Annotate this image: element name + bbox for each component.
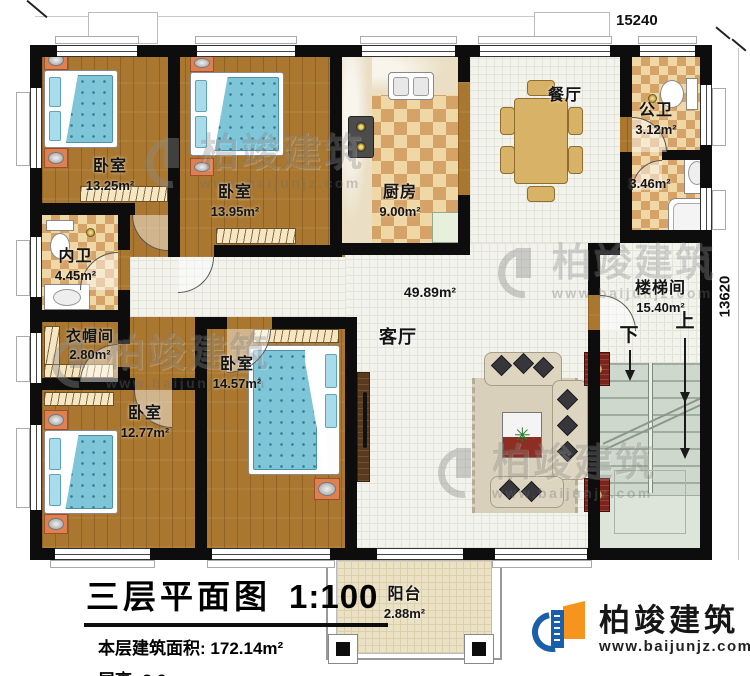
wall-bedroom3-living (345, 317, 357, 548)
window-bottom-living (495, 548, 587, 560)
stairs-down-label: 下 (616, 324, 642, 349)
wall-kitchen-bottom (330, 243, 470, 255)
nightstand (314, 478, 340, 500)
logo-building-blue-icon (551, 610, 564, 648)
window-top-bath (640, 45, 695, 57)
stair-down-arrowhead (625, 370, 635, 381)
plan-scale: 1:100 (289, 578, 378, 615)
room-label-bedroom1: 卧室 13.25m² (55, 157, 165, 195)
window-top-bedroom2 (197, 45, 295, 57)
plan-title-text: 三层平面图 (86, 578, 271, 615)
wall-bedroom1-bedroom2 (168, 57, 180, 257)
brand-logo-icon (536, 600, 590, 660)
nightstand (44, 514, 68, 534)
window-left-bedroom4 (30, 425, 42, 510)
dining-chair (500, 146, 515, 174)
brand-logo: 柏竣建筑 www.baijunjz.com (536, 600, 750, 660)
corner-tick-topright-1 (715, 26, 730, 39)
wall-bedroom2-bottom (214, 245, 342, 257)
stove (348, 116, 374, 158)
window-left-bedroom1 (30, 88, 42, 168)
window-left-cloakroom (30, 333, 42, 383)
window-top-kitchen (362, 45, 455, 57)
stairs-up-label: 上 (672, 310, 698, 335)
room-label-bedroom3: 卧室 14.57m² (182, 355, 292, 393)
wall-privatebath-bottom (42, 310, 130, 322)
wall-bath-bottom (620, 230, 712, 243)
dim-right-value: 13620 (717, 262, 734, 332)
room-label-private-bath: 内卫 4.45m² (33, 247, 118, 285)
balcony-column-right (464, 634, 494, 664)
wall-stairwell-left (588, 330, 600, 548)
room-label-kitchen: 厨房 9.00m² (345, 183, 455, 221)
sill-top-2 (195, 36, 297, 44)
sill-bottom-1 (50, 560, 155, 568)
room-label-dining: 餐厅 (515, 86, 615, 107)
tv (363, 392, 367, 448)
hallway-floor (130, 257, 357, 317)
floor-plan-canvas: ✳ 卧室 13.25m² 卧室 13.95m² 厨房 9.00m² 餐厅 公卫 … (0, 0, 750, 676)
room-label-public-bath: 公卫 3.12m² (612, 101, 700, 139)
window-right-bath-lower (700, 188, 712, 230)
dining-table (514, 98, 568, 184)
dining-chair (568, 107, 583, 135)
sill-right-2 (712, 190, 726, 230)
sill-bottom-2 (207, 560, 335, 568)
floor-height-value: 3.6m (142, 671, 181, 676)
floor-area-line: 本层建筑面积: 172.14m² (84, 634, 388, 659)
sill-bottom-3 (492, 560, 592, 568)
sill-top-5 (638, 36, 697, 44)
window-bottom-bedroom3 (212, 548, 330, 560)
sill-top-1 (55, 36, 139, 44)
wardrobe-bedroom2 (216, 228, 296, 244)
dim-top-value: 15240 (616, 12, 658, 29)
lamp-private-bath (86, 228, 95, 237)
wall-bath-divider (662, 150, 712, 160)
bed-bedroom2 (190, 72, 284, 156)
room-label-public-bath-lower: 3.46m² (610, 176, 690, 193)
floor-height-line: 层高: 3.6m (84, 666, 388, 676)
bed-bedroom4 (44, 430, 118, 514)
room-label-living: 客厅 (362, 326, 434, 349)
dining-chair (500, 107, 515, 135)
stair-mid-arrowhead (680, 392, 690, 403)
sill-left-1 (16, 92, 30, 166)
wall-bedroom2-kitchen (330, 57, 342, 255)
dining-chair (527, 186, 555, 202)
stair-down-arrow-line (629, 350, 631, 372)
sill-top-3 (360, 36, 457, 44)
stair-up-arrowhead (680, 448, 690, 459)
toilet-tank-private (46, 220, 74, 231)
room-label-cloakroom: 衣帽间 2.80m² (42, 327, 138, 363)
wall-kitchen-dining-top (458, 57, 470, 82)
room-label-bedroom4: 卧室 12.77m² (90, 404, 200, 442)
wall-bedroom1-bottom (42, 203, 135, 215)
room-label-bedroom2: 卧室 13.95m² (180, 183, 290, 221)
plant-icon: ✳ (514, 423, 531, 448)
window-top-bedroom1 (57, 45, 137, 57)
floor-area-label: 本层建筑面积: (98, 639, 206, 658)
sill-top-4 (478, 36, 612, 44)
dim-guide-right (738, 48, 739, 560)
wall-stairhall-left-upper (588, 243, 600, 295)
sill-left-4 (16, 428, 30, 508)
sill-left-3 (16, 336, 30, 382)
nightstand (190, 158, 214, 176)
floor-height-label: 层高: (98, 671, 138, 676)
plan-title: 三层平面图1:100 (84, 570, 388, 627)
window-bottom-bedroom4 (55, 548, 150, 560)
wall-bedroom3-top-a (207, 317, 227, 329)
kitchen-sink (388, 72, 434, 100)
brand-website: www.baijunjz.com (599, 638, 750, 655)
balcony-sliding-door (377, 548, 463, 560)
living-area-value: 49.89m² (385, 283, 475, 301)
logo-building-orange-icon (563, 601, 585, 639)
window-top-dining (480, 45, 610, 57)
wall-privatebath-right-a (118, 215, 130, 250)
corner-tick-topright-2 (731, 38, 746, 51)
sill-left-2 (16, 240, 30, 296)
nightstand (44, 410, 68, 430)
window-right-bath-upper (700, 85, 712, 145)
stair-landing-inner (614, 470, 686, 534)
bed-bedroom1 (44, 70, 118, 148)
dining-chair (568, 146, 583, 174)
title-block: 三层平面图1:100 本层建筑面积: 172.14m² 层高: 3.6m (84, 570, 388, 676)
sill-right-1 (712, 88, 726, 146)
brand-name: 柏竣建筑 (599, 605, 750, 638)
wall-stairhall-top-stub (600, 243, 620, 255)
floor-area-value: 172.14m² (210, 639, 283, 658)
